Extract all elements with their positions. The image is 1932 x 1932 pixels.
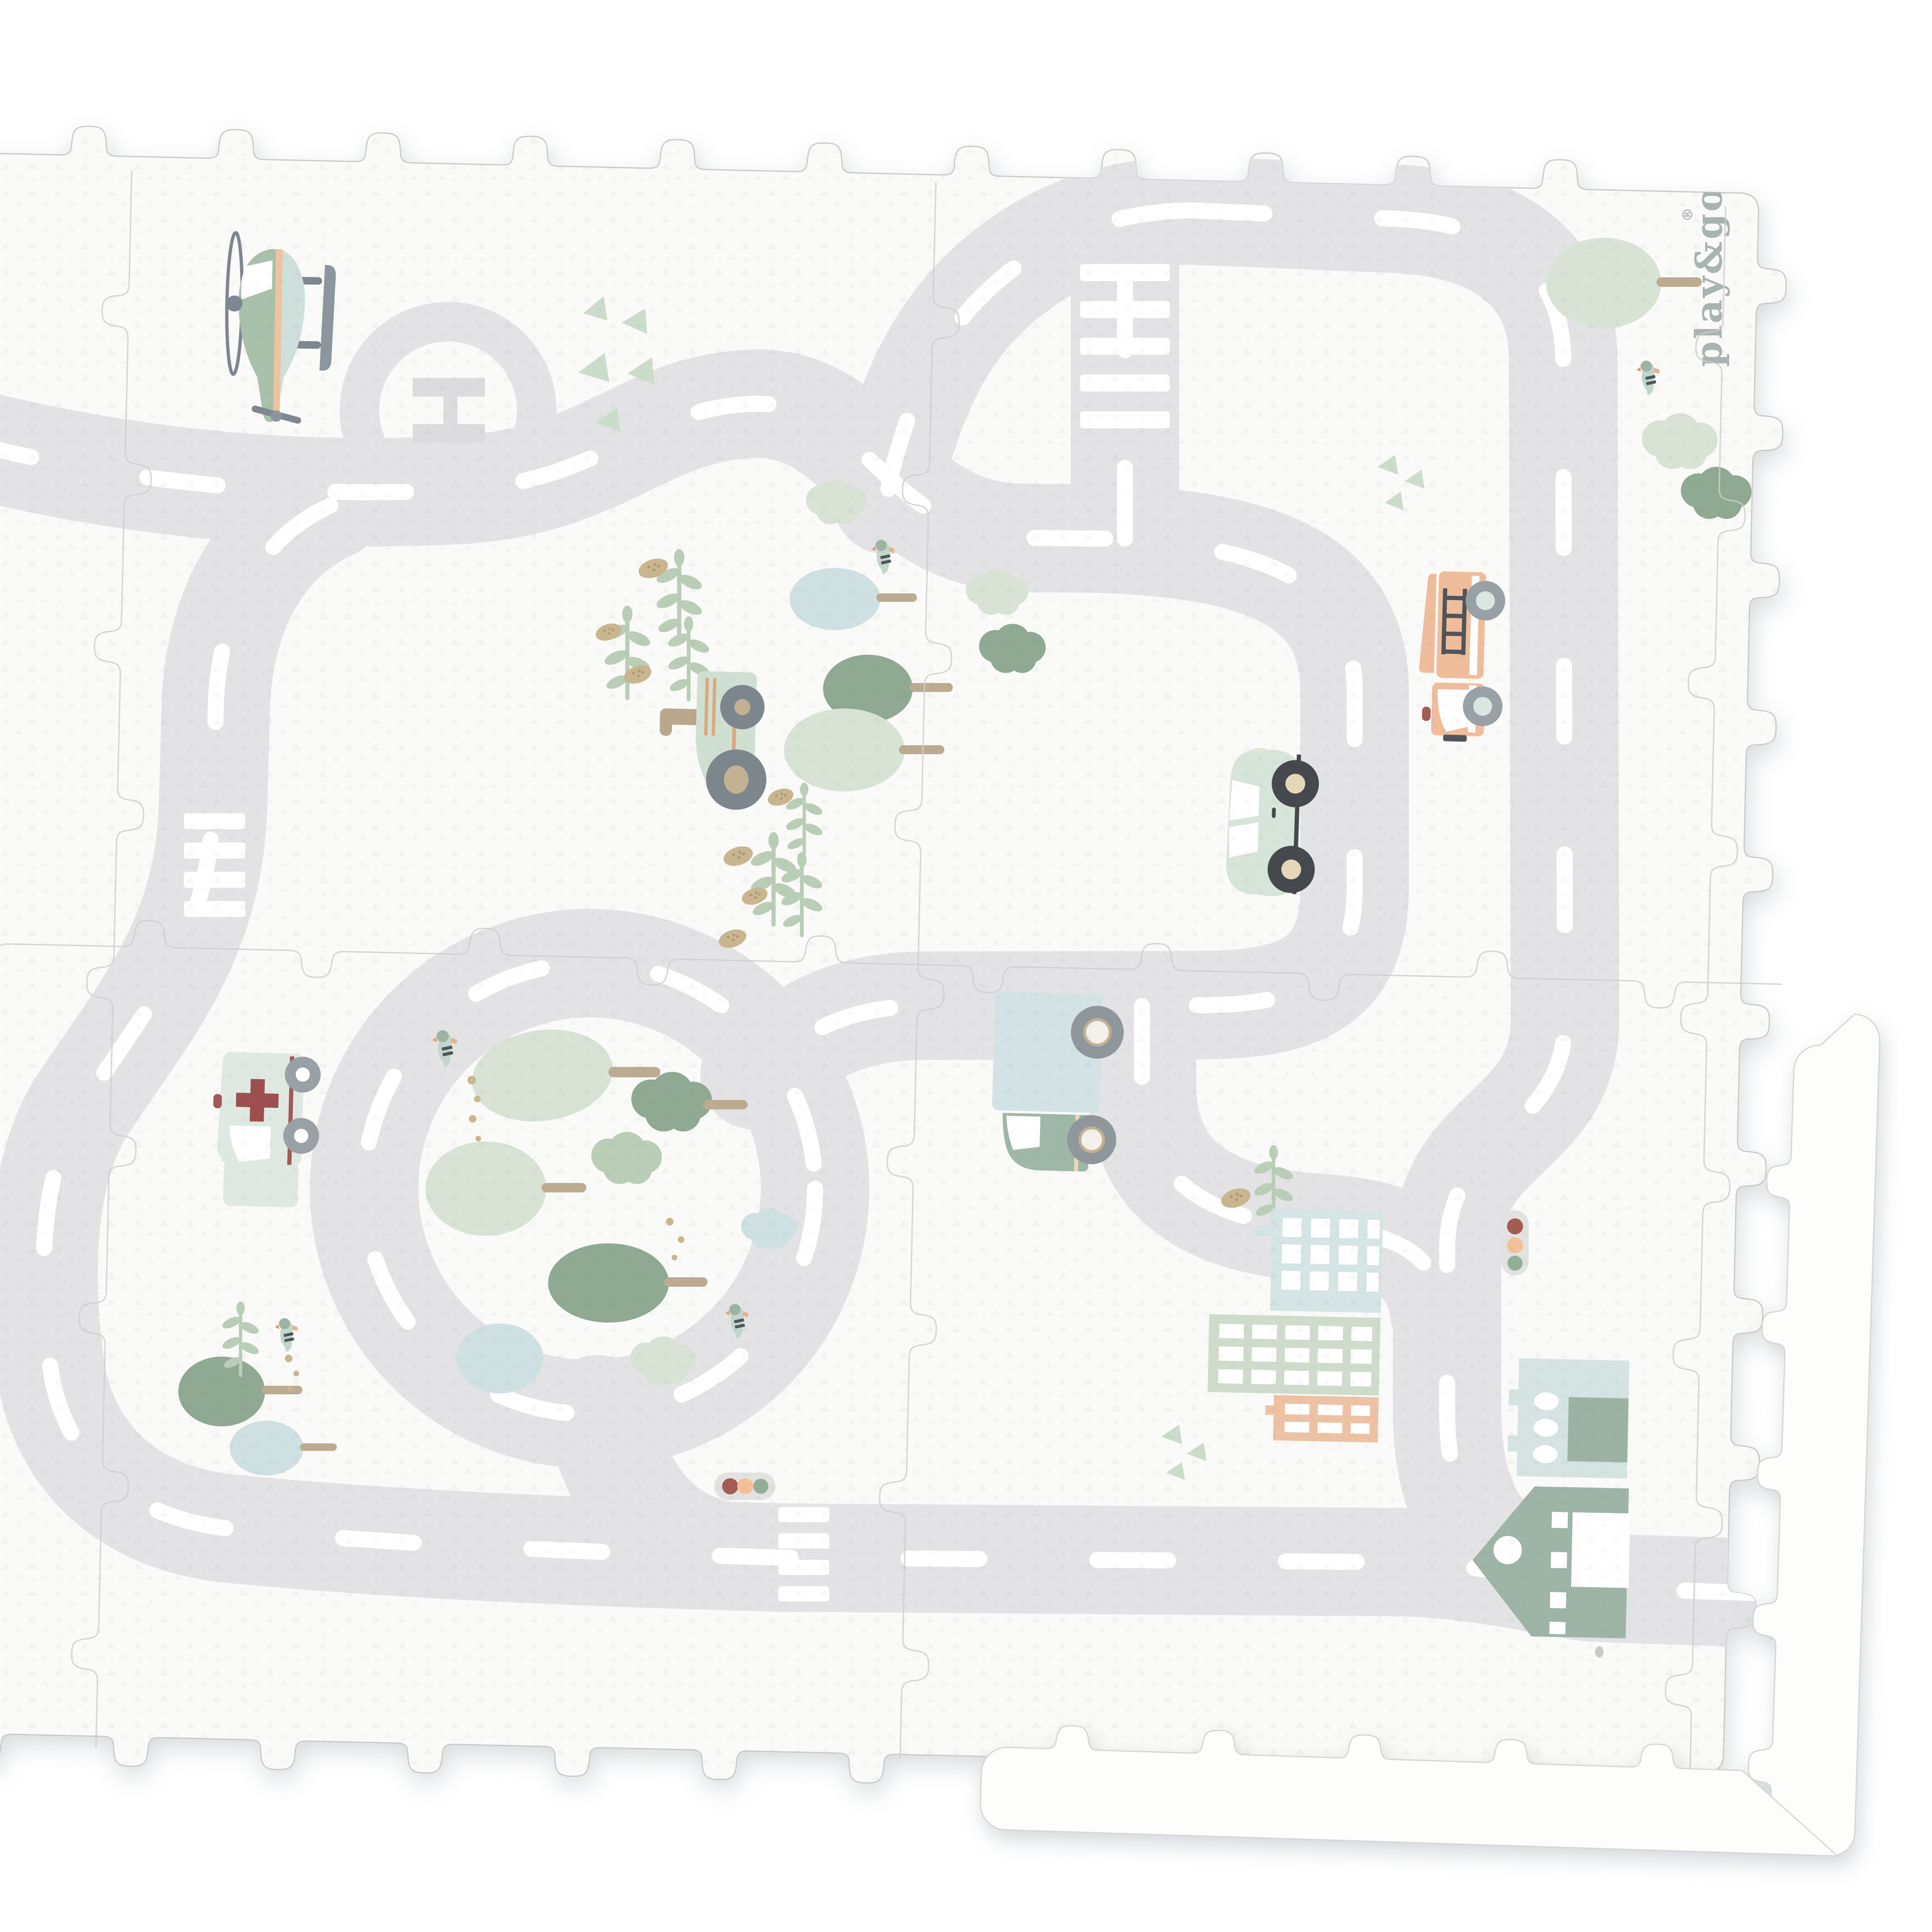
product-photo: H — [0, 0, 1932, 1932]
playmat-scene: H — [0, 0, 1932, 1932]
playmat: H — [0, 118, 1932, 1816]
